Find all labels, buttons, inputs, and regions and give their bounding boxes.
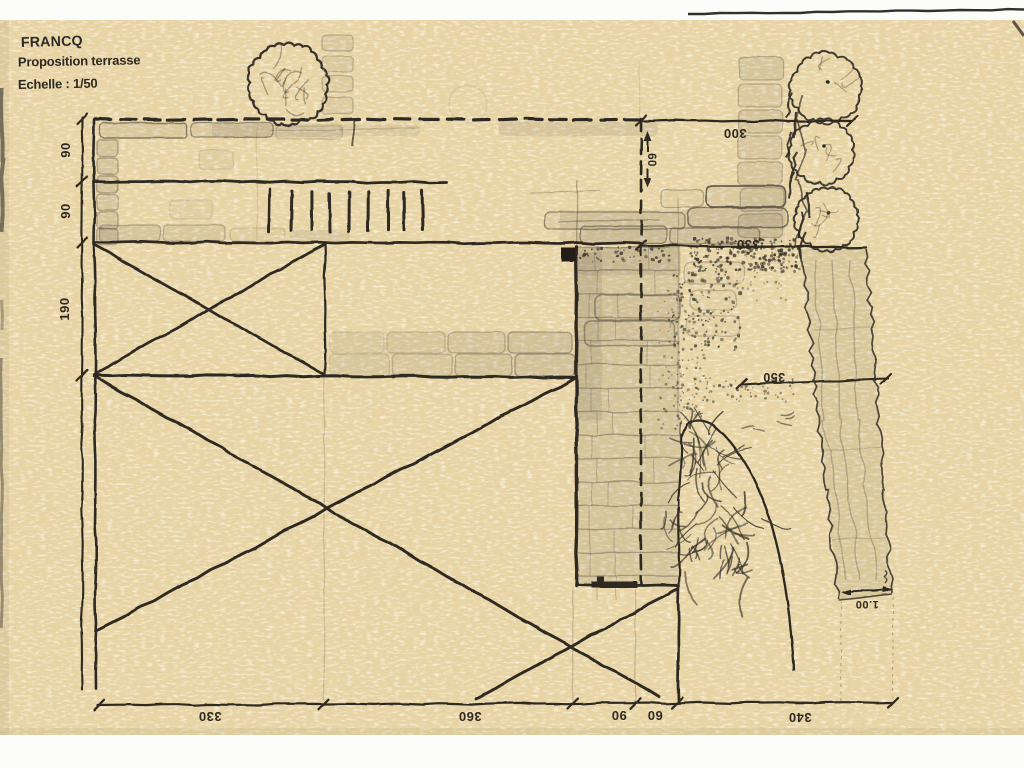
svg-text:330: 330 bbox=[198, 709, 221, 724]
svg-text:60: 60 bbox=[647, 708, 662, 723]
svg-text:1.00: 1.00 bbox=[855, 598, 878, 610]
svg-text:FRANCQ: FRANCQ bbox=[21, 33, 83, 51]
svg-text:Echelle : 1/50: Echelle : 1/50 bbox=[18, 76, 98, 92]
svg-text:360: 360 bbox=[458, 709, 481, 724]
svg-text:Proposition terrasse: Proposition terrasse bbox=[18, 52, 141, 69]
svg-text:90: 90 bbox=[611, 708, 626, 723]
svg-text:340: 340 bbox=[788, 710, 811, 725]
svg-text:190: 190 bbox=[57, 297, 72, 320]
svg-text:60: 60 bbox=[645, 153, 657, 167]
svg-text:330: 330 bbox=[736, 237, 759, 252]
svg-text:90: 90 bbox=[58, 203, 73, 218]
svg-text:350: 350 bbox=[763, 370, 785, 384]
svg-text:90: 90 bbox=[58, 142, 73, 157]
svg-text:300: 300 bbox=[723, 126, 746, 141]
